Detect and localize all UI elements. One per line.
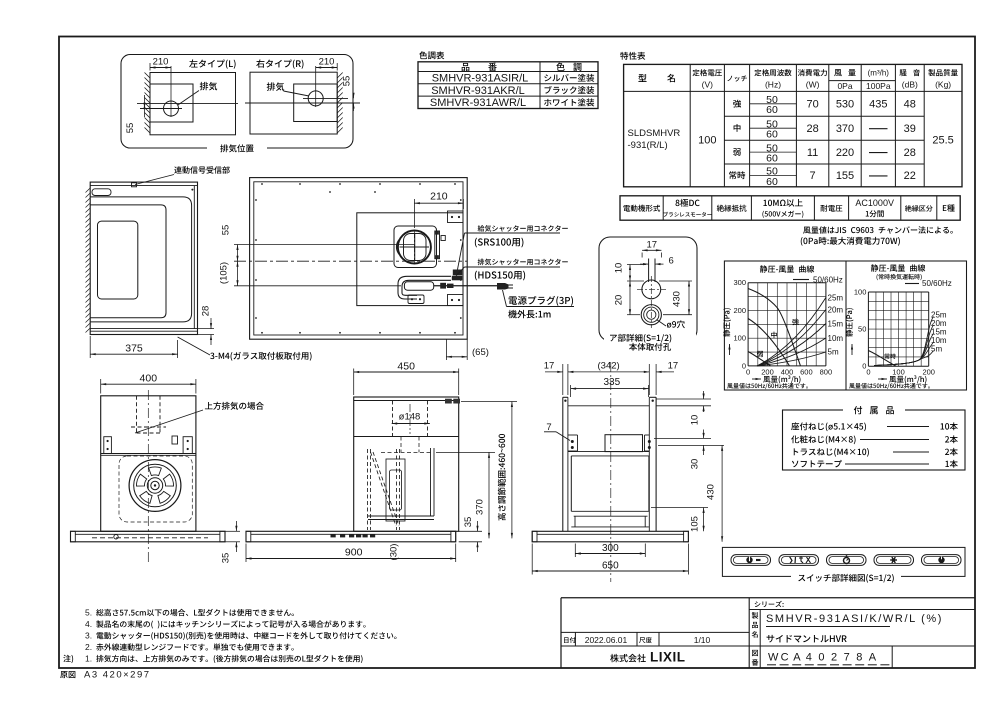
svg-text:210: 210 bbox=[153, 57, 169, 68]
svg-text:210: 210 bbox=[430, 191, 448, 203]
svg-text:22: 22 bbox=[904, 170, 916, 182]
svg-text:20: 20 bbox=[614, 295, 625, 306]
svg-text:39: 39 bbox=[904, 123, 916, 135]
svg-text:10: 10 bbox=[614, 263, 625, 274]
svg-text:100: 100 bbox=[698, 135, 716, 147]
svg-text:4.: 4. bbox=[85, 619, 92, 629]
svg-text:5m: 5m bbox=[828, 348, 839, 357]
svg-text:2022.06.01: 2022.06.01 bbox=[585, 635, 628, 645]
svg-text:600: 600 bbox=[800, 368, 813, 377]
svg-text:28: 28 bbox=[904, 147, 916, 159]
svg-text:28: 28 bbox=[806, 123, 818, 135]
svg-text:(342): (342) bbox=[598, 361, 620, 372]
svg-text:7: 7 bbox=[844, 652, 850, 664]
svg-text:11: 11 bbox=[807, 147, 818, 159]
svg-text:155: 155 bbox=[836, 170, 854, 182]
svg-text:(Hz): (Hz) bbox=[765, 80, 781, 90]
svg-text:10m: 10m bbox=[828, 334, 844, 343]
svg-text:20m: 20m bbox=[828, 306, 844, 315]
svg-text:800: 800 bbox=[820, 368, 833, 377]
svg-text:60: 60 bbox=[766, 176, 778, 188]
svg-text:4: 4 bbox=[806, 652, 812, 664]
svg-text:435: 435 bbox=[869, 99, 887, 111]
svg-text:70: 70 bbox=[806, 99, 818, 111]
svg-text:400: 400 bbox=[781, 368, 794, 377]
svg-text:200: 200 bbox=[922, 368, 935, 377]
svg-text:(65): (65) bbox=[472, 347, 489, 358]
svg-text:(Kg): (Kg) bbox=[935, 80, 951, 90]
svg-text:SMHVR-931AKR/L: SMHVR-931AKR/L bbox=[431, 85, 525, 97]
svg-text:(m³/h): (m³/h) bbox=[868, 69, 890, 78]
svg-text:7: 7 bbox=[810, 170, 816, 182]
svg-text:55: 55 bbox=[125, 123, 136, 134]
svg-text:105: 105 bbox=[690, 516, 701, 532]
svg-text:17: 17 bbox=[668, 361, 679, 372]
svg-text:220: 220 bbox=[836, 147, 854, 159]
svg-text:400: 400 bbox=[140, 373, 158, 385]
svg-text:28: 28 bbox=[201, 306, 212, 317]
svg-text:8: 8 bbox=[856, 652, 862, 664]
svg-text:100: 100 bbox=[733, 334, 746, 343]
svg-text:530: 530 bbox=[836, 99, 854, 111]
svg-text:100: 100 bbox=[854, 288, 867, 297]
svg-text:430: 430 bbox=[706, 484, 717, 500]
svg-text:SLDSMHVR: SLDSMHVR bbox=[628, 128, 681, 139]
svg-text:60: 60 bbox=[766, 129, 778, 141]
svg-text:375: 375 bbox=[125, 343, 143, 355]
svg-text:25.5: 25.5 bbox=[932, 135, 953, 147]
svg-text:0: 0 bbox=[818, 652, 824, 664]
svg-text:5.: 5. bbox=[85, 608, 92, 618]
svg-text:6: 6 bbox=[669, 256, 674, 267]
svg-text:100: 100 bbox=[892, 368, 905, 377]
svg-text:1/10: 1/10 bbox=[694, 635, 711, 645]
svg-text:335: 335 bbox=[603, 377, 620, 388]
svg-text:55: 55 bbox=[221, 225, 232, 236]
svg-text:200: 200 bbox=[733, 306, 746, 315]
svg-text:450: 450 bbox=[397, 361, 415, 373]
svg-text:0: 0 bbox=[866, 368, 870, 377]
svg-text:(W): (W) bbox=[806, 80, 820, 90]
svg-text:300: 300 bbox=[733, 278, 746, 287]
svg-text:-931(R/L): -931(R/L) bbox=[628, 140, 668, 151]
svg-text:0Pa: 0Pa bbox=[837, 81, 852, 91]
svg-text:(V): (V) bbox=[702, 80, 714, 90]
svg-text:210: 210 bbox=[319, 57, 335, 68]
svg-text:60: 60 bbox=[766, 153, 778, 165]
svg-text:3.: 3. bbox=[85, 631, 92, 641]
svg-text:A: A bbox=[869, 652, 877, 664]
svg-text:200: 200 bbox=[761, 368, 774, 377]
svg-text:SMHVR-931AWR/L: SMHVR-931AWR/L bbox=[430, 97, 526, 109]
svg-text:370: 370 bbox=[836, 123, 854, 135]
svg-text:370: 370 bbox=[475, 499, 486, 515]
svg-text:(105): (105) bbox=[219, 262, 230, 284]
svg-text:100Pa: 100Pa bbox=[866, 81, 891, 91]
svg-text:50/60Hz: 50/60Hz bbox=[922, 279, 952, 288]
svg-text:A3 420×297: A3 420×297 bbox=[84, 670, 151, 681]
svg-text:1.: 1. bbox=[85, 654, 92, 664]
svg-text:17: 17 bbox=[544, 361, 555, 372]
svg-text:25m: 25m bbox=[828, 294, 844, 303]
svg-text:0: 0 bbox=[746, 368, 750, 377]
svg-text:AC1000V: AC1000V bbox=[855, 198, 894, 208]
svg-text:35: 35 bbox=[463, 517, 474, 528]
svg-text:(dB): (dB) bbox=[902, 80, 918, 90]
svg-text:2.: 2. bbox=[85, 642, 92, 652]
svg-text:ø148: ø148 bbox=[399, 412, 421, 423]
svg-text:W: W bbox=[768, 652, 779, 664]
svg-text:48: 48 bbox=[904, 99, 916, 111]
svg-text:SMHVR-931ASIR/L: SMHVR-931ASIR/L bbox=[432, 73, 529, 85]
svg-text:60: 60 bbox=[766, 104, 778, 116]
svg-text:10: 10 bbox=[690, 415, 701, 426]
svg-text:900: 900 bbox=[345, 547, 363, 559]
svg-text:300: 300 bbox=[602, 543, 619, 554]
svg-text:50: 50 bbox=[858, 325, 866, 334]
svg-text:2: 2 bbox=[831, 652, 837, 664]
svg-text:C: C bbox=[781, 652, 789, 664]
svg-text:650: 650 bbox=[602, 561, 619, 572]
svg-text:30: 30 bbox=[690, 459, 701, 470]
svg-text:LIXIL: LIXIL bbox=[650, 650, 686, 665]
svg-text:17: 17 bbox=[647, 240, 658, 251]
svg-text:430: 430 bbox=[672, 291, 683, 307]
svg-text:(30): (30) bbox=[388, 544, 399, 561]
svg-text:SMHVR-931ASI/K/WR/L (%): SMHVR-931ASI/K/WR/L (%) bbox=[766, 613, 943, 625]
svg-text:55: 55 bbox=[342, 76, 353, 87]
svg-text:15m: 15m bbox=[828, 320, 844, 329]
svg-text:A: A bbox=[793, 652, 801, 664]
svg-text:35: 35 bbox=[221, 553, 232, 564]
